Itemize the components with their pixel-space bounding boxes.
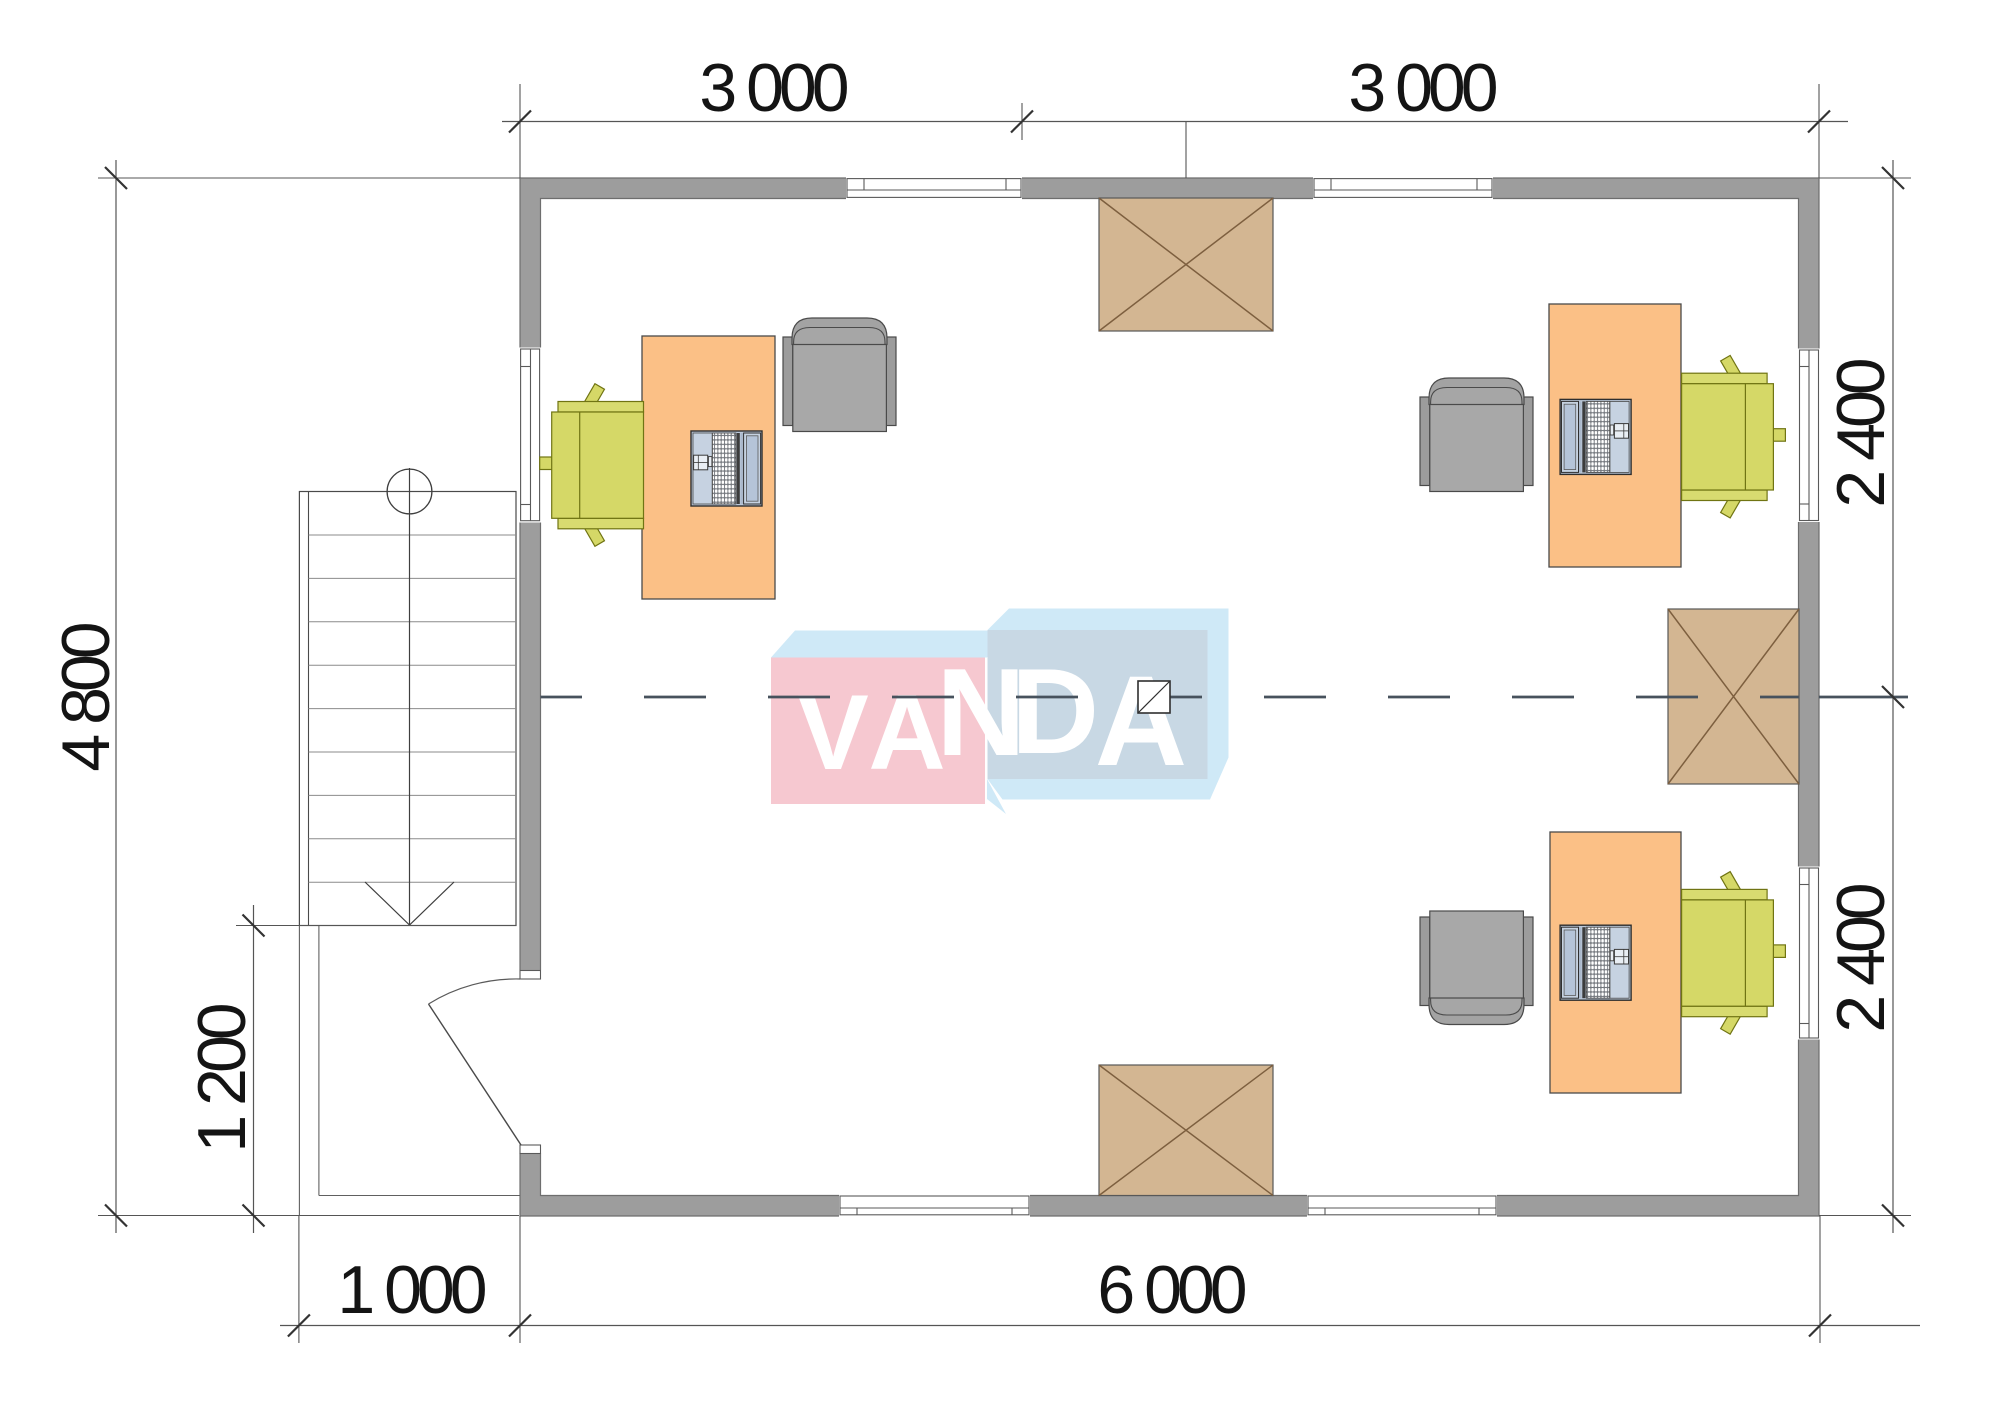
svg-text:2 400: 2 400 [1823,884,1899,1032]
svg-text:1 000: 1 000 [337,1252,485,1328]
svg-text:3 000: 3 000 [1348,50,1496,126]
svg-text:A: A [1095,650,1187,793]
svg-text:6 000: 6 000 [1097,1252,1245,1328]
svg-text:3 000: 3 000 [699,50,847,126]
svg-text:V: V [797,672,868,792]
svg-text:A: A [868,672,945,792]
svg-text:1 200: 1 200 [184,1004,260,1152]
svg-text:4 800: 4 800 [48,623,124,771]
svg-text:2 400: 2 400 [1823,359,1899,507]
svg-text:D: D [1011,643,1099,779]
